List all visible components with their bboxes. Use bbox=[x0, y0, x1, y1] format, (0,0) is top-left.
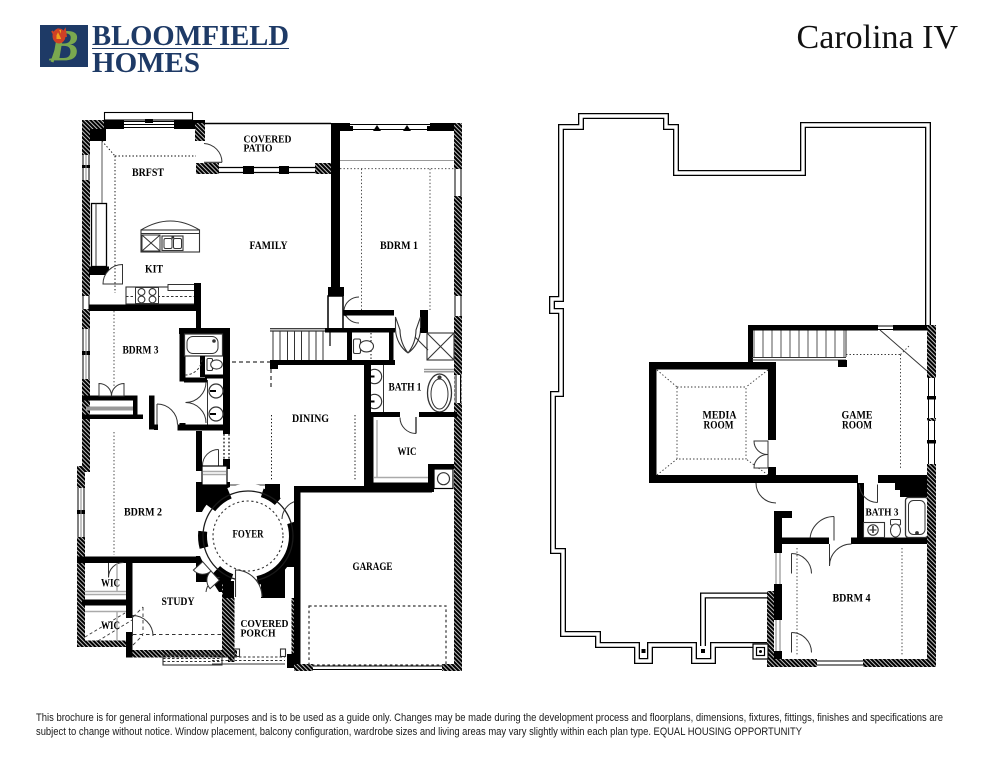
svg-text:FOYER: FOYER bbox=[233, 527, 264, 541]
svg-text:BDRM 1: BDRM 1 bbox=[380, 238, 418, 252]
svg-text:FAMILY: FAMILY bbox=[250, 238, 288, 252]
svg-text:STUDY: STUDY bbox=[162, 594, 195, 608]
svg-text:WIC: WIC bbox=[101, 576, 120, 590]
svg-text:HOMES: HOMES bbox=[92, 47, 200, 79]
svg-text:ROOM: ROOM bbox=[704, 420, 734, 432]
svg-text:DINING: DINING bbox=[292, 411, 329, 425]
svg-text:ROOM: ROOM bbox=[842, 420, 872, 432]
svg-text:BATH 1: BATH 1 bbox=[389, 380, 422, 394]
svg-text:WIC: WIC bbox=[101, 618, 120, 632]
svg-text:WIC: WIC bbox=[398, 444, 417, 458]
svg-text:BATH 3: BATH 3 bbox=[866, 507, 899, 519]
svg-text:subject to change without noti: subject to change without notice. Window… bbox=[36, 726, 802, 738]
svg-text:BDRM 3: BDRM 3 bbox=[123, 343, 159, 357]
svg-text:BDRM 2: BDRM 2 bbox=[124, 505, 162, 519]
svg-text:GARAGE: GARAGE bbox=[353, 559, 393, 573]
svg-text:KIT: KIT bbox=[145, 262, 163, 276]
svg-text:BRFST: BRFST bbox=[132, 165, 164, 179]
svg-text:PORCH: PORCH bbox=[241, 628, 276, 640]
svg-text:PATIO: PATIO bbox=[244, 143, 273, 155]
svg-text:This brochure is for general i: This brochure is for general information… bbox=[36, 712, 943, 724]
svg-text:BDRM 4: BDRM 4 bbox=[833, 591, 871, 605]
svg-text:B: B bbox=[48, 21, 78, 70]
svg-text:Carolina IV: Carolina IV bbox=[797, 19, 959, 56]
